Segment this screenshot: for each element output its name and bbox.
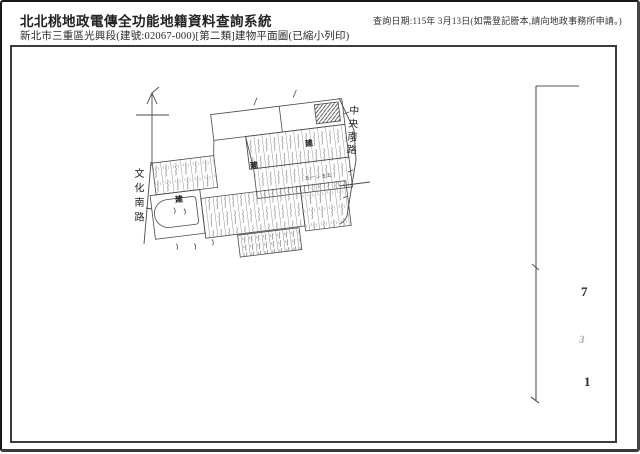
query-date-note: 查詢日期:115年 3月13日(如需登記謄本,請向地政事務所申請。) — [373, 14, 622, 27]
building-marker: 建 — [304, 137, 313, 149]
map-frame-border — [10, 45, 617, 443]
document-subtitle: 新北市三重區光興段(建號:02067-000)[第二類]建物平面圖(已縮小列印) — [20, 28, 349, 43]
building-marker: 建 — [174, 194, 183, 206]
page-title: 北北桃地政電傳全功能地籍資料查詢系統 — [20, 10, 272, 30]
page: { "header": { "title": "北北桃地政電傳全功能地籍資料查詢… — [0, 0, 640, 452]
street-label-wenhua-south-road: 文化南路 — [132, 168, 142, 244]
margin-mark-1: 1 — [584, 374, 591, 390]
building-marker: 建 — [249, 159, 258, 171]
margin-mark-7: 7 — [581, 284, 588, 300]
